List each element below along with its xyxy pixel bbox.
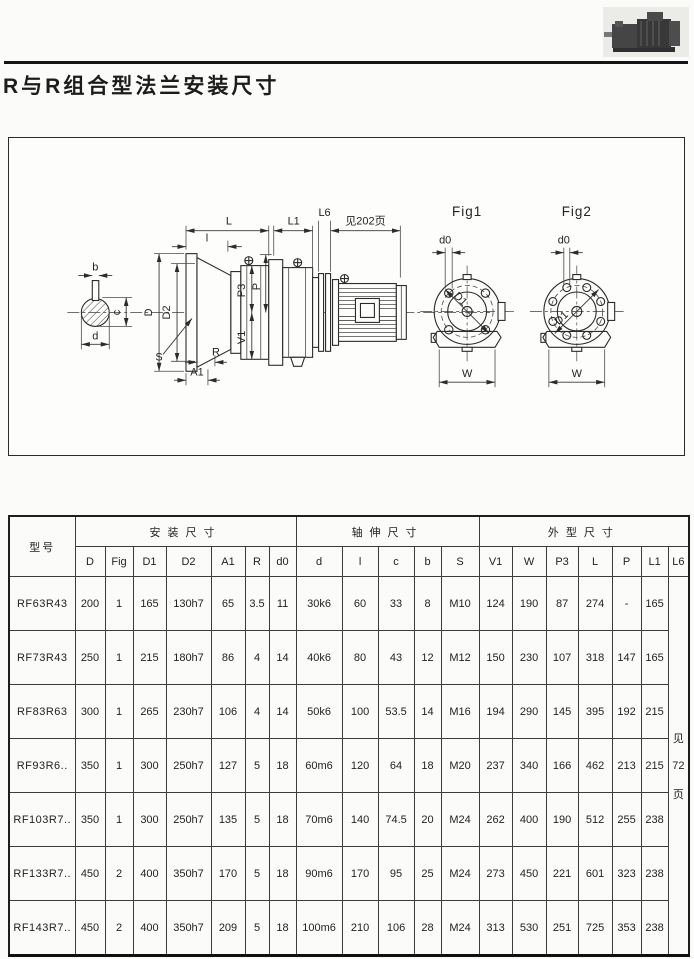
value-cell: 215 [641, 739, 668, 793]
dim-label-R: R [212, 346, 220, 358]
value-cell: 170 [342, 847, 378, 901]
value-cell: 18 [269, 901, 296, 956]
col-header-D2: D2 [166, 547, 211, 577]
value-cell: 238 [641, 847, 668, 901]
value-cell: 100m6 [296, 901, 342, 956]
dim-label-P: P [251, 283, 263, 290]
value-cell: 190 [512, 577, 546, 631]
model-cell: RF73R43 [9, 631, 75, 685]
fig2-label: Fig2 [562, 204, 592, 219]
value-cell: 18 [269, 793, 296, 847]
value-cell: 237 [479, 739, 512, 793]
value-cell: 166 [546, 739, 578, 793]
dim-label-d: d [92, 330, 98, 342]
value-cell: - [612, 577, 641, 631]
col-header-W: W [512, 547, 546, 577]
value-cell: 350 [75, 793, 105, 847]
value-cell: 80 [342, 631, 378, 685]
value-cell: 313 [479, 901, 512, 956]
value-cell: 50k6 [296, 685, 342, 739]
table-row: RF63R432001165130h7653.51130k660338M1012… [9, 577, 689, 631]
model-cell: RF93R6.. [9, 739, 75, 793]
col-header-R: R [245, 547, 269, 577]
value-cell: 106 [211, 685, 245, 739]
fig1-label: Fig1 [452, 204, 482, 219]
value-cell: 238 [641, 901, 668, 956]
value-cell: 65 [211, 577, 245, 631]
page-title: R与R组合型法兰安装尺寸 [3, 70, 279, 100]
col-header-A1: A1 [211, 547, 245, 577]
value-cell: M24 [441, 901, 479, 956]
value-cell: 14 [269, 685, 296, 739]
col-header-L1: L1 [641, 547, 668, 577]
col-header-d: d [296, 547, 342, 577]
technical-drawing: b c d [8, 137, 685, 456]
value-cell: 5 [245, 793, 269, 847]
dim-label-L: L [226, 216, 232, 228]
col-header-Fig: Fig [105, 547, 133, 577]
value-cell: 33 [378, 577, 414, 631]
flange-fig2: Fig2 D1 d0 W [530, 204, 624, 387]
dim-label-b: b [92, 262, 98, 274]
value-cell: 2 [105, 847, 133, 901]
value-cell: 340 [512, 739, 546, 793]
value-cell: 165 [641, 631, 668, 685]
value-cell: 400 [512, 793, 546, 847]
value-cell: 87 [546, 577, 578, 631]
value-cell: 725 [578, 901, 612, 956]
col-header-D: D [75, 547, 105, 577]
dim-label-d0: d0 [439, 235, 451, 247]
value-cell: 250h7 [166, 793, 211, 847]
l6-note-cell: 见72页 [668, 577, 689, 956]
value-cell: 190 [546, 793, 578, 847]
value-cell: 107 [546, 631, 578, 685]
value-cell: 18 [269, 739, 296, 793]
dimension-table: 型号安装尺寸轴伸尺寸外型尺寸DFigD1D2A1Rd0dlcbSV1WP3LPL… [8, 515, 686, 957]
l6-note-line: 72 [672, 760, 684, 772]
table-row: RF133R7..4502400350h717051890m61709525M2… [9, 847, 689, 901]
value-cell: 601 [578, 847, 612, 901]
l6-note-line: 见 [673, 730, 684, 746]
table-row: RF93R6..3501300250h712751860m61206418M20… [9, 739, 689, 793]
technical-drawing-svg: b c d [9, 138, 684, 455]
value-cell: 274 [578, 577, 612, 631]
value-cell: 43 [378, 631, 414, 685]
value-cell: 530 [512, 901, 546, 956]
col-header-b: b [414, 547, 441, 577]
eye-bolt-icon [341, 275, 349, 283]
table-row: RF73R432501215180h78641440k6804312M12150… [9, 631, 689, 685]
value-cell: 70m6 [296, 793, 342, 847]
value-cell: 450 [75, 901, 105, 956]
value-cell: 140 [342, 793, 378, 847]
value-cell: 130h7 [166, 577, 211, 631]
value-cell: 3.5 [245, 577, 269, 631]
dim-label-l: l [206, 233, 208, 245]
col-header-L: L [578, 547, 612, 577]
value-cell: 30k6 [296, 577, 342, 631]
value-cell: 165 [641, 577, 668, 631]
value-cell: 53.5 [378, 685, 414, 739]
value-cell: 350h7 [166, 847, 211, 901]
value-cell: 170 [211, 847, 245, 901]
value-cell: 14 [414, 685, 441, 739]
group-header: 轴伸尺寸 [296, 516, 479, 547]
value-cell: 5 [245, 901, 269, 956]
dim-label-W: W [572, 368, 583, 380]
value-cell: 1 [105, 793, 133, 847]
value-cell: 8 [414, 577, 441, 631]
dim-label-V1: V1 [236, 331, 248, 344]
model-cell: RF103R7.. [9, 793, 75, 847]
col-header-P: P [612, 547, 641, 577]
col-header-P3: P3 [546, 547, 578, 577]
value-cell: 147 [612, 631, 641, 685]
value-cell: M10 [441, 577, 479, 631]
value-cell: 318 [578, 631, 612, 685]
value-cell: 95 [378, 847, 414, 901]
value-cell: 238 [641, 793, 668, 847]
value-cell: 1 [105, 631, 133, 685]
value-cell: 12 [414, 631, 441, 685]
value-cell: 300 [75, 685, 105, 739]
value-cell: 209 [211, 901, 245, 956]
value-cell: 4 [245, 631, 269, 685]
value-cell: 450 [75, 847, 105, 901]
value-cell: 350 [75, 739, 105, 793]
value-cell: 250h7 [166, 739, 211, 793]
col-header-model: 型号 [9, 516, 75, 577]
value-cell: 262 [479, 793, 512, 847]
value-cell: M12 [441, 631, 479, 685]
value-cell: 215 [641, 685, 668, 739]
value-cell: 165 [133, 577, 166, 631]
value-cell: 106 [378, 901, 414, 956]
value-cell: 462 [578, 739, 612, 793]
model-cell: RF133R7.. [9, 847, 75, 901]
value-cell: 221 [546, 847, 578, 901]
value-cell: 290 [512, 685, 546, 739]
group-header: 外型尺寸 [479, 516, 689, 547]
col-header-c: c [378, 547, 414, 577]
value-cell: 300 [133, 793, 166, 847]
value-cell: 300 [133, 739, 166, 793]
value-cell: 230 [512, 631, 546, 685]
vent-screw-icon [294, 259, 302, 267]
dim-label-P3: P3 [236, 284, 248, 297]
dim-label-L1: L1 [288, 216, 300, 228]
value-cell: 350h7 [166, 901, 211, 956]
value-cell: 127 [211, 739, 245, 793]
model-cell: RF63R43 [9, 577, 75, 631]
value-cell: 25 [414, 847, 441, 901]
value-cell: 14 [269, 631, 296, 685]
value-cell: 124 [479, 577, 512, 631]
table-row: RF83R633001265230h710641450k610053.514M1… [9, 685, 689, 739]
value-cell: 5 [245, 847, 269, 901]
value-cell: 200 [75, 577, 105, 631]
value-cell: 20 [414, 793, 441, 847]
flange-fig1: Fig1 D1 d0 W [420, 204, 514, 387]
col-header-L6: L6 [668, 547, 689, 577]
value-cell: 210 [342, 901, 378, 956]
col-header-V1: V1 [479, 547, 512, 577]
value-cell: 18 [269, 847, 296, 901]
value-cell: 255 [612, 793, 641, 847]
value-cell: 120 [342, 739, 378, 793]
value-cell: 2 [105, 901, 133, 956]
dim-label-D2: D2 [161, 305, 173, 319]
group-header: 安装尺寸 [75, 516, 296, 547]
dim-label-c: c [111, 309, 123, 315]
value-cell: 1 [105, 739, 133, 793]
value-cell: 5 [245, 739, 269, 793]
value-cell: 1 [105, 577, 133, 631]
col-header-S: S [441, 547, 479, 577]
value-cell: 512 [578, 793, 612, 847]
value-cell: 273 [479, 847, 512, 901]
value-cell: 150 [479, 631, 512, 685]
dim-label-D: D [143, 308, 155, 316]
value-cell: M24 [441, 847, 479, 901]
value-cell: 74.5 [378, 793, 414, 847]
value-cell: 323 [612, 847, 641, 901]
value-cell: 215 [133, 631, 166, 685]
col-header-D1: D1 [133, 547, 166, 577]
value-cell: 4 [245, 685, 269, 739]
flange-dimension-table: 型号安装尺寸轴伸尺寸外型尺寸DFigD1D2A1Rd0dlcbSV1WP3LPL… [8, 515, 690, 957]
value-cell: 90m6 [296, 847, 342, 901]
dim-label-A1: A1 [190, 366, 203, 378]
value-cell: 100 [342, 685, 378, 739]
shaft-cross-section: b c d [78, 262, 132, 350]
value-cell: 251 [546, 901, 578, 956]
value-cell: 86 [211, 631, 245, 685]
value-cell: 60 [342, 577, 378, 631]
title-rule [4, 61, 688, 64]
value-cell: 145 [546, 685, 578, 739]
value-cell: 353 [612, 901, 641, 956]
table-row: RF143R7..4502400350h7209518100m621010628… [9, 901, 689, 956]
value-cell: 194 [479, 685, 512, 739]
value-cell: 60m6 [296, 739, 342, 793]
model-cell: RF143R7.. [9, 901, 75, 956]
value-cell: 1 [105, 685, 133, 739]
value-cell: 40k6 [296, 631, 342, 685]
value-cell: 135 [211, 793, 245, 847]
value-cell: 250 [75, 631, 105, 685]
gearmotor-photo [603, 7, 689, 57]
value-cell: 395 [578, 685, 612, 739]
vent-screw-icon [245, 257, 253, 265]
dim-label-d0: d0 [558, 235, 570, 247]
dim-label-see-page: 见202页 [345, 216, 385, 228]
value-cell: M16 [441, 685, 479, 739]
dim-label-D1: D1 [451, 290, 469, 308]
value-cell: 230h7 [166, 685, 211, 739]
value-cell: 64 [378, 739, 414, 793]
value-cell: M24 [441, 793, 479, 847]
value-cell: 265 [133, 685, 166, 739]
col-header-d0: d0 [269, 547, 296, 577]
value-cell: M20 [441, 739, 479, 793]
value-cell: 180h7 [166, 631, 211, 685]
value-cell: 400 [133, 847, 166, 901]
l6-note-line: 页 [673, 786, 684, 802]
value-cell: 28 [414, 901, 441, 956]
value-cell: 18 [414, 739, 441, 793]
value-cell: 450 [512, 847, 546, 901]
model-cell: RF83R63 [9, 685, 75, 739]
col-header-l: l [342, 547, 378, 577]
value-cell: 400 [133, 901, 166, 956]
value-cell: 192 [612, 685, 641, 739]
table-row: RF103R7..3501300250h713551870m614074.520… [9, 793, 689, 847]
dim-label-W: W [462, 368, 473, 380]
value-cell: 213 [612, 739, 641, 793]
value-cell: 11 [269, 577, 296, 631]
dim-label-S: S [155, 351, 162, 363]
dim-label-L6: L6 [318, 207, 330, 219]
